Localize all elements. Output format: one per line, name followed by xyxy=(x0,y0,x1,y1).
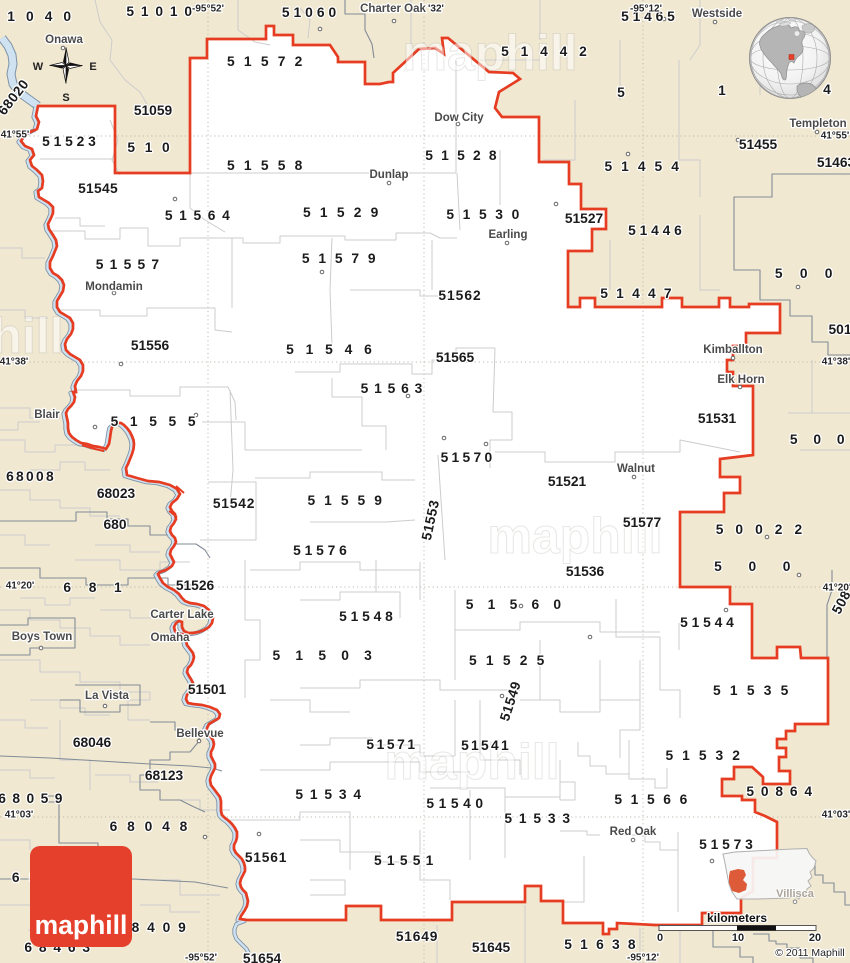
svg-text:51531: 51531 xyxy=(698,411,737,426)
svg-text:-95°12': -95°12' xyxy=(630,4,662,15)
svg-text:41°03': 41°03' xyxy=(5,810,34,821)
svg-text:S: S xyxy=(62,92,69,104)
svg-text:4: 4 xyxy=(823,82,831,97)
svg-text:5 0 0 2 2: 5 0 0 2 2 xyxy=(716,522,807,537)
svg-text:51562: 51562 xyxy=(438,288,481,303)
svg-text:51540: 51540 xyxy=(426,796,487,811)
svg-text:5 1 4 4 7: 5 1 4 4 7 xyxy=(600,286,674,301)
svg-text:5 1 5 5 7: 5 1 5 5 7 xyxy=(96,257,161,272)
svg-text:Charter Oak: Charter Oak xyxy=(360,3,426,15)
svg-text:-95°52': -95°52' xyxy=(185,953,217,963)
svg-text:5 1 5 6 4: 5 1 5 6 4 xyxy=(165,208,231,223)
svg-text:Dunlap: Dunlap xyxy=(370,169,409,181)
svg-text:Elk Horn: Elk Horn xyxy=(717,374,764,386)
svg-text:51541: 51541 xyxy=(461,738,511,753)
svg-text:5 1 5 3 0: 5 1 5 3 0 xyxy=(446,207,521,222)
svg-text:51059: 51059 xyxy=(134,103,173,118)
svg-text:5 1 4 4 6: 5 1 4 4 6 xyxy=(628,223,682,238)
svg-text:5 1 5 4 8: 5 1 5 4 8 xyxy=(339,609,393,624)
svg-text:51645: 51645 xyxy=(472,940,511,955)
svg-text:Blair: Blair xyxy=(34,409,60,421)
svg-text:-95°52': -95°52' xyxy=(192,4,224,15)
svg-text:5 1 6 3 8: 5 1 6 3 8 xyxy=(564,937,638,952)
svg-text:51649: 51649 xyxy=(396,929,438,944)
svg-text:Bellevue: Bellevue xyxy=(176,728,223,740)
svg-text:41°38': 41°38' xyxy=(0,357,28,368)
svg-text:5 0 0: 5 0 0 xyxy=(775,266,839,281)
svg-text:Omaha: Omaha xyxy=(151,632,191,644)
svg-text:68023: 68023 xyxy=(97,486,136,501)
svg-text:Kimballton: Kimballton xyxy=(703,344,762,356)
svg-text:Earling: Earling xyxy=(489,229,528,241)
svg-text:5 1 5 7 2: 5 1 5 7 2 xyxy=(227,54,305,69)
svg-text:kilometers: kilometers xyxy=(707,911,767,925)
svg-text:51455: 51455 xyxy=(739,137,778,152)
svg-text:6 8 0 5 9: 6 8 0 5 9 xyxy=(0,791,64,806)
svg-text:5 1 5 5 8: 5 1 5 5 8 xyxy=(227,158,305,173)
svg-text:5 1 5 5 1: 5 1 5 5 1 xyxy=(374,853,434,868)
svg-text:5 1 0 1 0: 5 1 0 1 0 xyxy=(126,4,193,19)
svg-text:68123: 68123 xyxy=(145,768,184,783)
svg-text:51571: 51571 xyxy=(366,737,417,752)
svg-text:5 0 8 6 4: 5 0 8 6 4 xyxy=(746,784,813,799)
svg-text:51542: 51542 xyxy=(213,496,255,511)
svg-text:5 0 0: 5 0 0 xyxy=(714,559,802,574)
svg-text:5 1 0: 5 1 0 xyxy=(127,140,172,155)
svg-text:5 1 5 4 6: 5 1 5 4 6 xyxy=(286,342,376,357)
svg-text:51556: 51556 xyxy=(131,338,170,353)
svg-text:W: W xyxy=(33,61,44,73)
svg-text:Dow City: Dow City xyxy=(434,112,484,124)
svg-text:41°20': 41°20' xyxy=(823,583,850,594)
svg-text:La Vista: La Vista xyxy=(85,690,129,702)
svg-text:20: 20 xyxy=(809,932,821,944)
svg-text:5 1 5 7 6: 5 1 5 7 6 xyxy=(293,543,347,558)
svg-text:51501: 51501 xyxy=(188,682,227,697)
svg-text:51060: 51060 xyxy=(282,5,340,20)
svg-text:5 1 4 5 4: 5 1 4 5 4 xyxy=(604,159,681,174)
svg-text:51577: 51577 xyxy=(623,515,662,530)
svg-text:Onawa: Onawa xyxy=(45,34,83,46)
svg-text:5 1 5 3 4: 5 1 5 3 4 xyxy=(295,787,362,802)
svg-text:41°55': 41°55' xyxy=(1,130,30,141)
svg-text:Villisca: Villisca xyxy=(776,888,815,900)
svg-text:6 8 1: 6 8 1 xyxy=(63,580,128,595)
svg-text:Templeton: Templeton xyxy=(789,118,846,130)
svg-text:51521: 51521 xyxy=(548,474,587,489)
svg-text:51526: 51526 xyxy=(176,578,215,593)
svg-text:5: 5 xyxy=(617,85,625,100)
svg-text:-95°12': -95°12' xyxy=(627,953,659,963)
svg-text:1: 1 xyxy=(718,83,726,98)
svg-text:51570: 51570 xyxy=(441,450,496,465)
svg-text:51654: 51654 xyxy=(243,951,282,963)
svg-text:51545: 51545 xyxy=(78,181,118,196)
svg-text:5 1 5 5 9: 5 1 5 5 9 xyxy=(307,493,384,508)
svg-text:680: 680 xyxy=(103,517,126,532)
svg-text:5 1 5 2 8: 5 1 5 2 8 xyxy=(425,148,499,163)
svg-text:41°55': 41°55' xyxy=(821,131,850,142)
svg-text:51565: 51565 xyxy=(436,350,475,365)
svg-text:5 1 5 4 4: 5 1 5 4 4 xyxy=(680,615,734,630)
svg-text:68046: 68046 xyxy=(73,735,112,750)
svg-text:501: 501 xyxy=(828,322,850,337)
svg-text:0: 0 xyxy=(657,932,663,944)
svg-text:Red Oak: Red Oak xyxy=(610,826,657,838)
svg-text:E: E xyxy=(89,61,96,73)
svg-text:5 1 5 6 3: 5 1 5 6 3 xyxy=(361,381,424,396)
svg-text:Carter Lake: Carter Lake xyxy=(150,609,213,621)
svg-text:51536: 51536 xyxy=(566,564,605,579)
svg-text:41°03': 41°03' xyxy=(822,810,850,821)
svg-text:5 1 5 2 9: 5 1 5 2 9 xyxy=(303,205,381,220)
svg-text:51527: 51527 xyxy=(565,211,604,226)
svg-text:5 1 5 7 9: 5 1 5 7 9 xyxy=(302,251,378,266)
svg-text:41°20': 41°20' xyxy=(6,581,35,592)
svg-text:68008: 68008 xyxy=(6,469,56,484)
svg-text:maphill: maphill xyxy=(35,910,128,940)
svg-text:© 2011 Maphill: © 2011 Maphill xyxy=(775,947,844,959)
svg-text:5 0 0 4: 5 0 0 4 xyxy=(790,432,850,447)
svg-text:5 1 5 2 5: 5 1 5 2 5 xyxy=(469,653,547,668)
svg-text:1 0 4 0: 1 0 4 0 xyxy=(7,9,74,24)
svg-text:5 1 5 3 3: 5 1 5 3 3 xyxy=(504,811,571,826)
svg-text:5 1 5 5 5: 5 1 5 5 5 xyxy=(111,414,200,429)
svg-text:51561: 51561 xyxy=(245,850,287,865)
svg-text:41°38': 41°38' xyxy=(822,357,850,368)
svg-text:10: 10 xyxy=(732,932,744,944)
svg-text:Westside: Westside xyxy=(692,8,742,20)
svg-text:Walnut: Walnut xyxy=(617,463,655,475)
svg-text:5 1 5 0 3: 5 1 5 0 3 xyxy=(273,648,378,663)
svg-text:'32': '32' xyxy=(428,4,444,15)
svg-text:5 1 5 3 2: 5 1 5 3 2 xyxy=(665,748,742,763)
svg-text:5 1 5 6 0: 5 1 5 6 0 xyxy=(466,597,567,612)
svg-text:Mondamin: Mondamin xyxy=(85,281,143,293)
svg-text:5 1 5 7 3: 5 1 5 7 3 xyxy=(699,837,753,852)
svg-text:5 1 4 4 2: 5 1 4 4 2 xyxy=(501,44,591,59)
svg-text:5 1 5 6 6: 5 1 5 6 6 xyxy=(614,792,689,807)
svg-text:Boys Town: Boys Town xyxy=(12,631,72,643)
svg-text:5 1 5 2 3: 5 1 5 2 3 xyxy=(42,134,96,149)
svg-text:5 1 5 3 5: 5 1 5 3 5 xyxy=(713,683,791,698)
svg-text:6 8 0 4 8: 6 8 0 4 8 xyxy=(110,819,191,834)
svg-text:51463: 51463 xyxy=(817,155,850,170)
